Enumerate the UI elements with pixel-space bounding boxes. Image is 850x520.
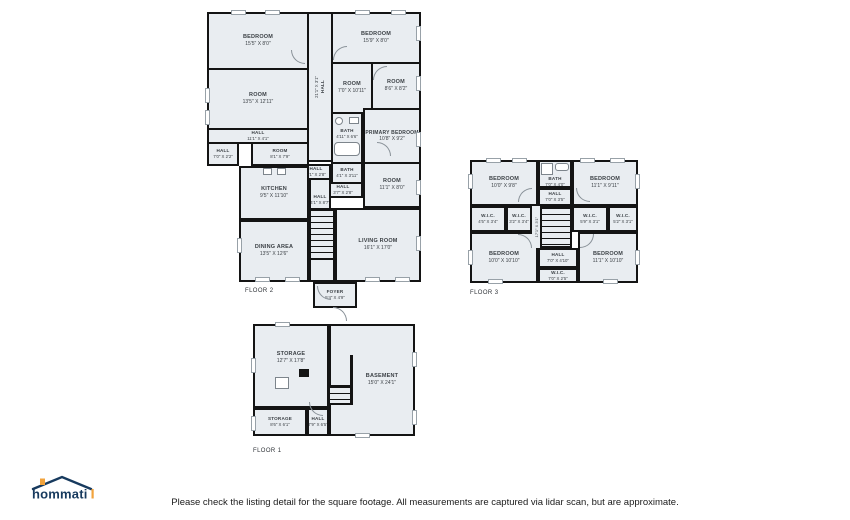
window-marker: [488, 279, 503, 284]
kitchen-appliance: [277, 168, 286, 175]
window-marker: [265, 10, 280, 15]
floor3-wic-e: W.I.C. 7'0" X 2'5": [538, 268, 578, 283]
floor2-hall-b: HALL 7'0" X 2'2": [207, 142, 239, 166]
sink-fixture: [349, 117, 359, 124]
window-marker: [365, 277, 380, 282]
window-marker: [391, 10, 406, 15]
floor2-kitchen: KITCHEN 9'5" X 11'10": [239, 166, 309, 220]
floor2-room-small: ROOM 8'1" X 7'9": [251, 142, 309, 166]
hommati-logo-graphic: hommati: [27, 474, 99, 502]
window-marker: [231, 10, 246, 15]
floor3-hall-corridor: 17'1" X 3'1": [532, 206, 540, 248]
floor3-hall-bottom: HALL 7'0" X 4'10": [538, 248, 578, 268]
logo-text: hommati: [32, 487, 88, 502]
floor3-wic-d: W.I.C. 5'2" X 3'1": [608, 206, 638, 232]
floor3-wic-c: W.I.C. 5'9" X 3'1": [572, 206, 608, 232]
utility-box: [275, 377, 289, 389]
floor2-staircase: [309, 208, 335, 260]
window-marker: [275, 322, 290, 327]
window-marker: [285, 277, 300, 282]
window-marker: [635, 174, 640, 189]
kitchen-appliance: [263, 168, 272, 175]
window-marker: [412, 352, 417, 367]
floor2-bath-lower: BATH 4'1" X 3'11": [331, 162, 363, 184]
floor1-basement: BASEMENT 15'0" X 24'1": [329, 324, 415, 436]
window-marker: [486, 158, 501, 163]
logo-accent-bar: [92, 489, 94, 499]
floor3-hall-top: HALL 7'0" X 3'5": [538, 188, 572, 206]
furnace-marker: [299, 369, 309, 377]
window-marker: [468, 250, 473, 265]
window-marker: [468, 174, 473, 189]
floor2-landing: [309, 258, 335, 282]
window-marker: [416, 76, 421, 91]
window-marker: [355, 10, 370, 15]
floor2-living-room: LIVING ROOM 16'1" X 17'0": [335, 208, 421, 282]
floor2-plan: BEDROOM 15'5" X 8'0" 21'1" X 3'1" HALL B…: [205, 10, 421, 310]
chimney-icon: [40, 479, 45, 486]
window-marker: [416, 26, 421, 41]
window-marker: [355, 433, 370, 438]
window-marker: [416, 236, 421, 251]
shower-fixture: [541, 163, 553, 175]
window-marker: [251, 358, 256, 373]
window-marker: [205, 110, 210, 125]
floor2-bedroom-top-left: BEDROOM 15'5" X 8'0": [207, 12, 309, 70]
window-marker: [512, 158, 527, 163]
window-marker: [635, 250, 640, 265]
window-marker: [395, 277, 410, 282]
floor3-staircase: [540, 206, 572, 248]
disclaimer-text: Please check the listing detail for the …: [0, 497, 850, 508]
window-marker: [255, 277, 270, 282]
window-marker: [416, 180, 421, 195]
floor1-storage-small: STORAGE 8'6" X 6'1": [253, 408, 307, 436]
bathtub-fixture: [334, 142, 360, 156]
hommati-logo: hommati: [27, 474, 99, 507]
floor2-dining-area: DINING AREA 13'5" X 12'6": [239, 220, 309, 282]
window-marker: [251, 416, 256, 431]
floor2-hall-corridor: 21'1" X 3'1" HALL: [307, 12, 333, 162]
floor1-storage-main: STORAGE 12'7" X 17'8": [253, 324, 329, 408]
floor1-label: FLOOR 1: [253, 448, 281, 454]
floor2-primary-bedroom: PRIMARY BEDROOM 10'8" X 9'2": [363, 108, 421, 164]
interior-wall: [350, 355, 353, 405]
bathtub-fixture: [555, 163, 569, 171]
floor3-wic-a: W.I.C. 4'5" X 3'4": [470, 206, 506, 232]
floor1-staircase: [328, 385, 352, 405]
toilet-fixture: [335, 117, 343, 125]
window-marker: [416, 132, 421, 147]
window-marker: [580, 158, 595, 163]
floor3-label: FLOOR 3: [470, 290, 498, 296]
floor3-plan: BEDROOM 10'0" X 9'8" BATH 7'0" X 4'0" BE…: [468, 158, 640, 298]
floor2-label: FLOOR 2: [245, 288, 273, 294]
floorplan-page: BEDROOM 15'5" X 8'0" 21'1" X 3'1" HALL B…: [0, 0, 850, 520]
window-marker: [237, 238, 242, 253]
floor1-plan: STORAGE 12'7" X 17'8" BASEMENT 15'0" X 2…: [251, 322, 417, 456]
floor2-room-left: ROOM 13'5" X 12'11": [207, 68, 309, 130]
window-marker: [603, 279, 618, 284]
window-marker: [610, 158, 625, 163]
window-marker: [205, 88, 210, 103]
floor3-wic-b: W.I.C. 3'2" X 3'4": [506, 206, 532, 232]
window-marker: [412, 410, 417, 425]
floor2-room-bottom-right: ROOM 11'1" X 8'0": [363, 162, 421, 208]
floor2-room-middle: ROOM 7'0" X 10'11": [331, 62, 373, 114]
